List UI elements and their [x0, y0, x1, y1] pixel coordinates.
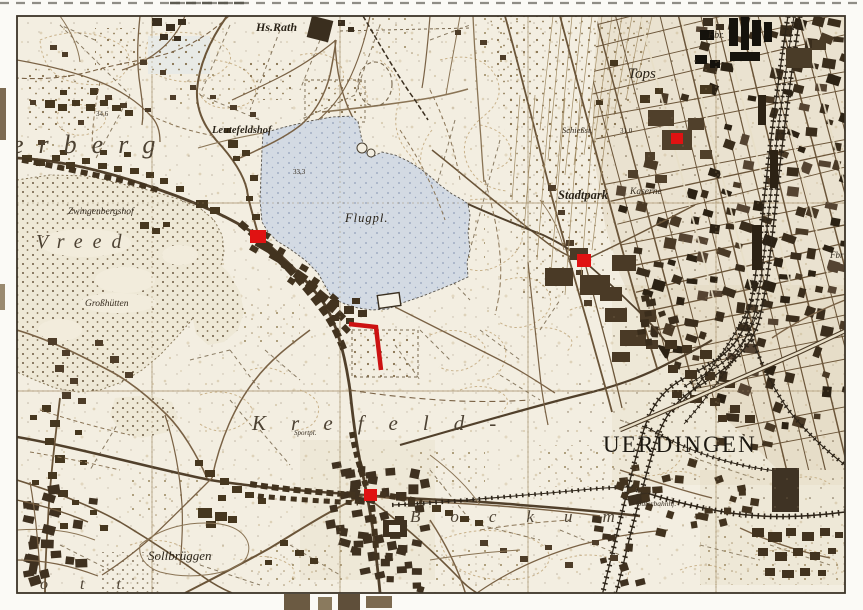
svg-text:Bockum: Bockum — [410, 507, 645, 526]
svg-text:Sportpl.: Sportpl. — [294, 429, 317, 437]
svg-text:o t t: o t t — [40, 576, 135, 593]
svg-text:Schießst.: Schießst. — [562, 125, 592, 135]
svg-text:34,6: 34,6 — [96, 110, 109, 118]
svg-text:Tops: Tops — [628, 66, 656, 82]
svg-text:Güterbahnhf.: Güterbahnhf. — [636, 499, 676, 508]
svg-text:Hs.Rath: Hs.Rath — [255, 20, 297, 34]
svg-text:Stadtpark: Stadtpark — [558, 188, 609, 202]
svg-text:erberg: erberg — [12, 130, 170, 159]
svg-text:Zwingenbergshof: Zwingenbergshof — [68, 206, 135, 217]
svg-text:Großhütten: Großhütten — [85, 298, 129, 309]
svg-text:UERDINGEN: UERDINGEN — [603, 432, 757, 457]
svg-text:Sollbrüggen: Sollbrüggen — [148, 548, 212, 563]
svg-text:Vreed: Vreed — [36, 231, 132, 253]
svg-text:Flugpl.: Flugpl. — [344, 211, 388, 225]
svg-text:Krefeld-: Krefeld- — [251, 411, 521, 435]
svg-text:Leutefeldshof: Leutefeldshof — [211, 125, 273, 136]
svg-text:Kaserne: Kaserne — [629, 187, 662, 197]
svg-text:31,0: 31,0 — [620, 127, 633, 135]
svg-text:33,3: 33,3 — [293, 168, 306, 176]
svg-text:Fbr: Fbr — [829, 250, 844, 260]
